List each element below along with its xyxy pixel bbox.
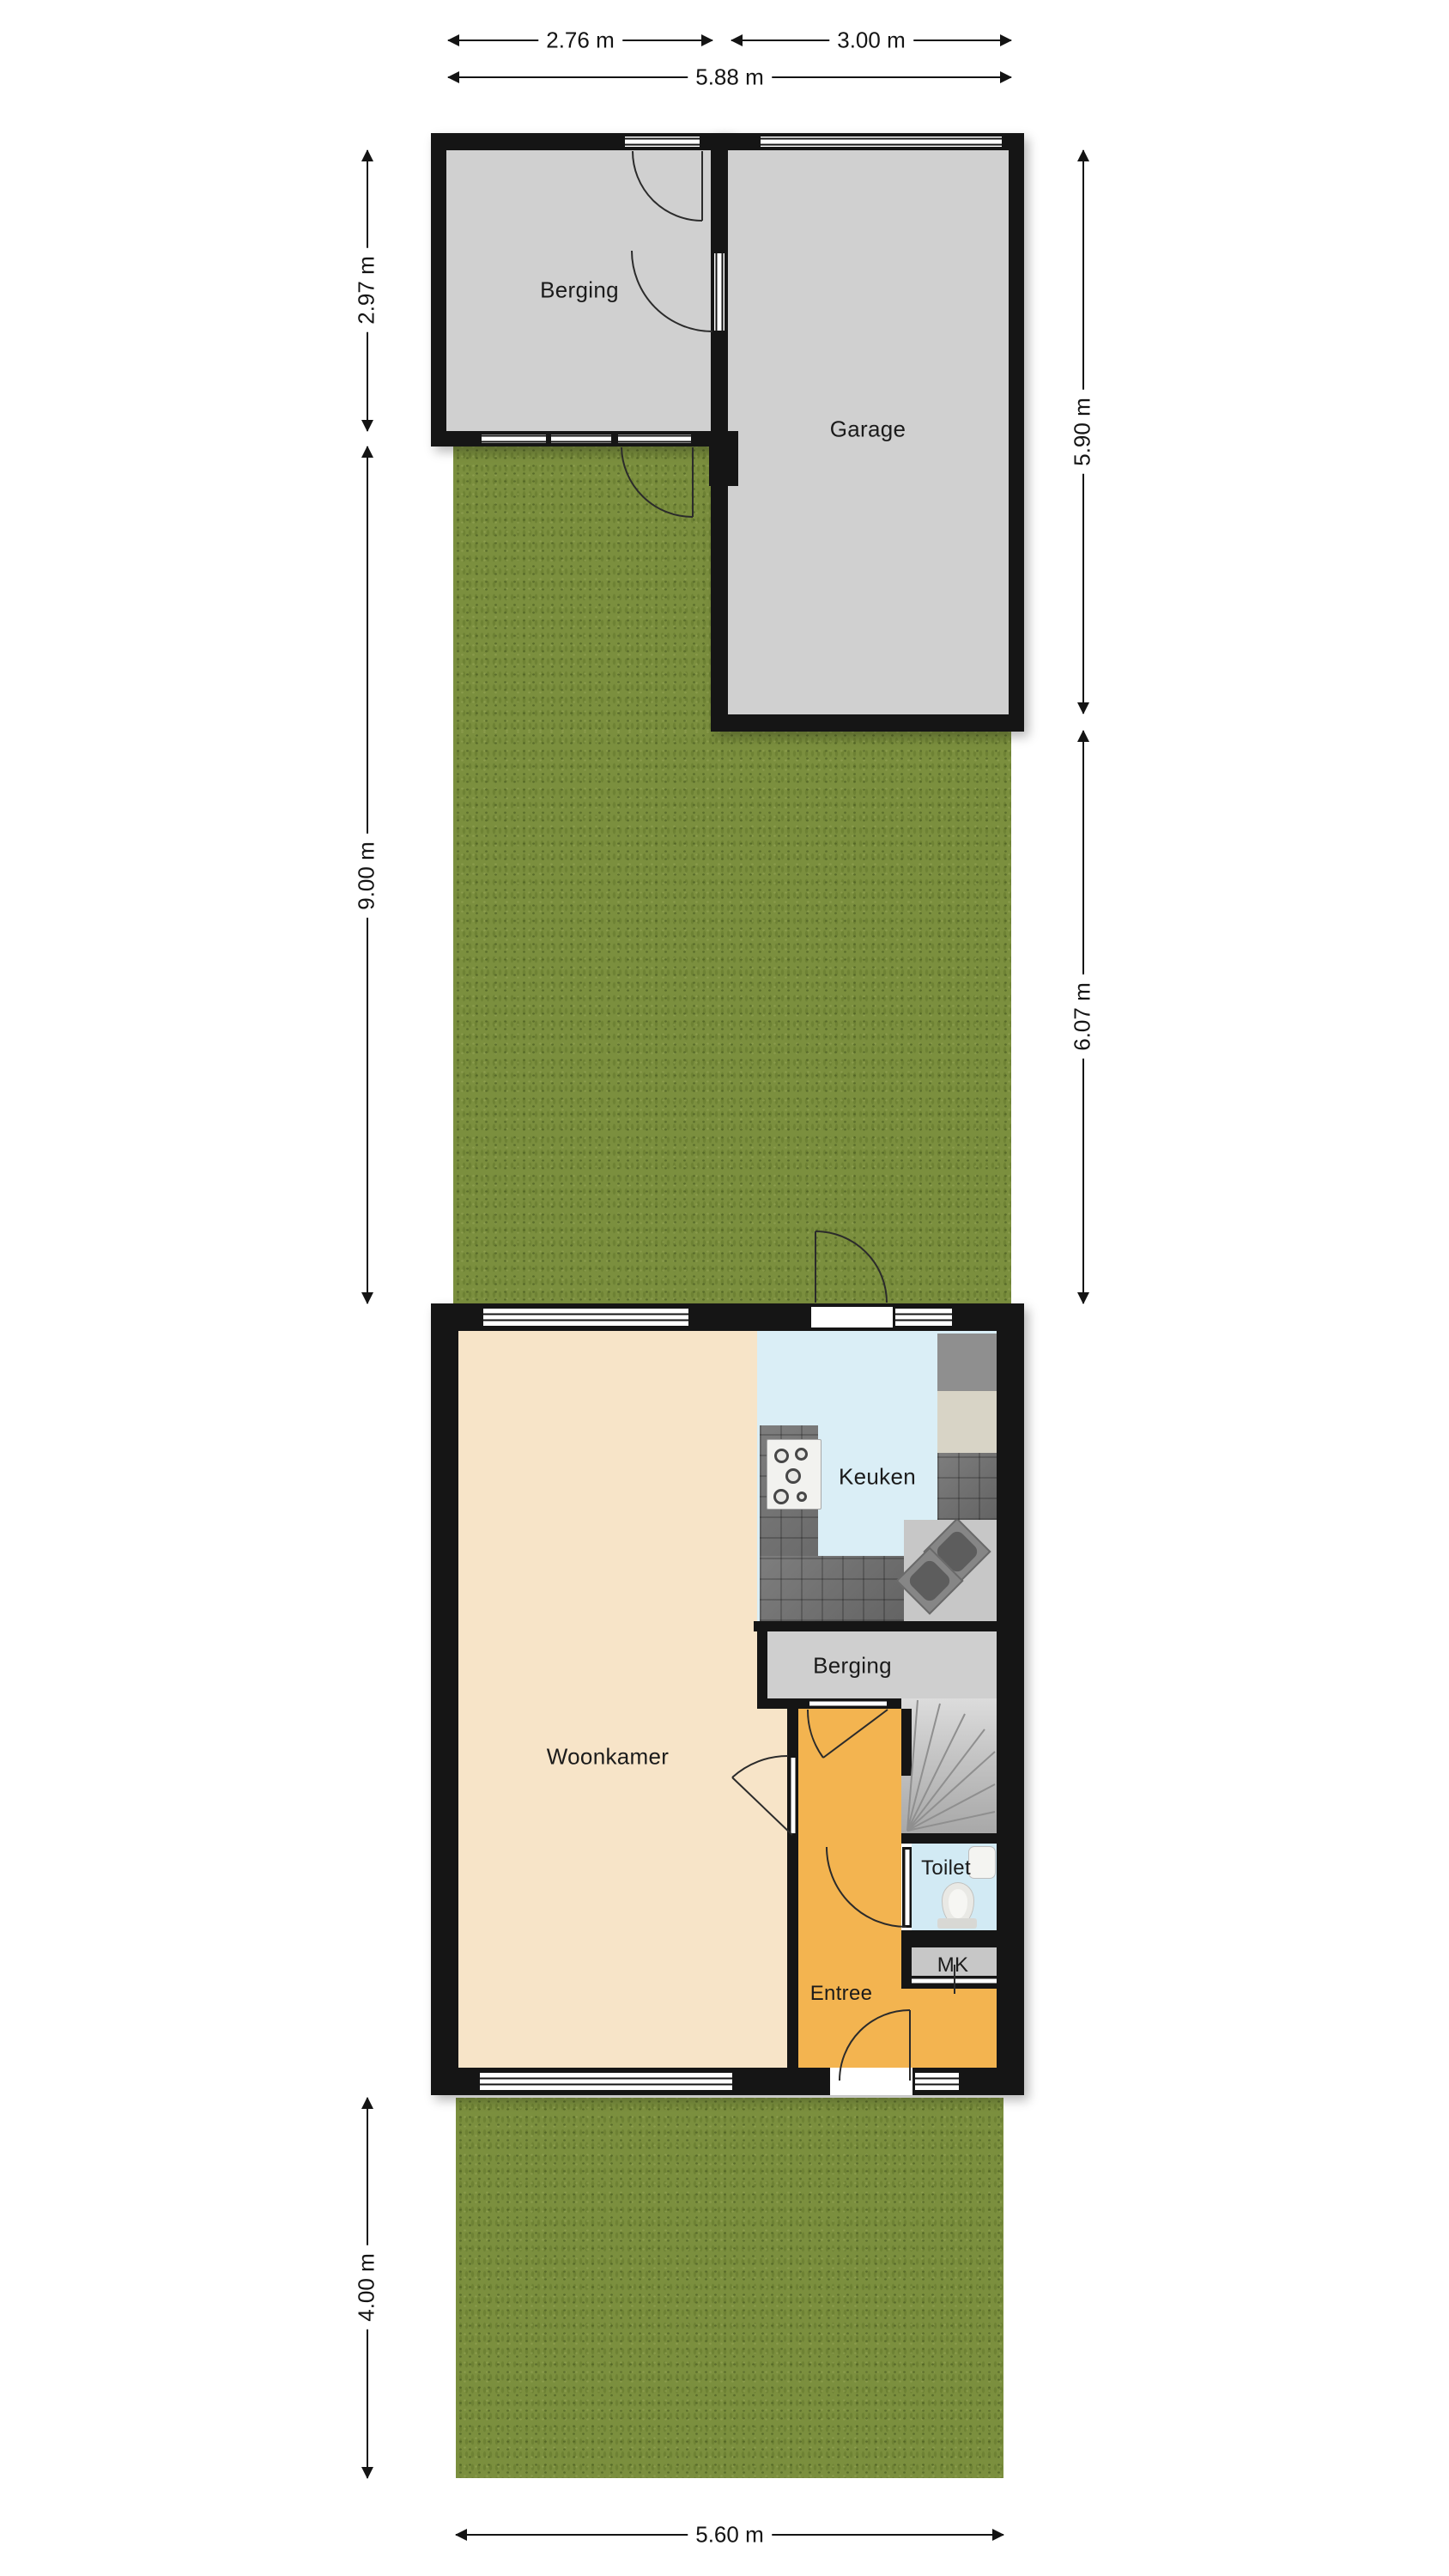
dim-label-left-bottom: 4.00 m bbox=[354, 2245, 380, 2330]
wall-garage-bottom bbox=[711, 714, 1024, 732]
kitchen-counter-bottom bbox=[760, 1556, 904, 1621]
room-label-garage: Garage bbox=[830, 416, 906, 443]
wall-toilet-bottom bbox=[901, 1930, 997, 1947]
sink-basin-2 bbox=[906, 1558, 953, 1604]
wall-mk-left bbox=[901, 1947, 912, 1989]
wall-berging-left bbox=[757, 1621, 767, 1709]
staircase bbox=[901, 1698, 997, 1833]
floor-plan-canvas: Berging Garage Keuken Woonkamer Berging … bbox=[0, 0, 1449, 2576]
dim-label-top-total: 5.88 m bbox=[688, 64, 772, 91]
window-woonkamer-front bbox=[477, 2071, 735, 2092]
kitchen-unit-tall bbox=[937, 1334, 997, 1391]
floor-woonkamer-strip bbox=[757, 1709, 787, 2068]
garden-bottom bbox=[456, 2098, 1003, 2478]
window-berging-garden bbox=[479, 433, 694, 445]
hob-burner-1 bbox=[774, 1449, 789, 1463]
wall-house-left bbox=[431, 1303, 458, 2095]
floor-entree bbox=[798, 1709, 901, 2068]
dim-label-left-top: 2.97 m bbox=[354, 248, 380, 332]
window-keuken-back bbox=[893, 1307, 955, 1327]
door-toilet-frame bbox=[902, 1847, 912, 1928]
door-back-opening bbox=[811, 1307, 893, 1327]
dim-label-bottom-total: 5.60 m bbox=[688, 2522, 772, 2549]
kitchen-unit-lower bbox=[937, 1453, 997, 1520]
door-berging-top-entry bbox=[622, 135, 702, 149]
toilet-base bbox=[937, 1918, 977, 1929]
door-woonkamer-frame bbox=[788, 1755, 797, 1836]
wall-corner-pillar bbox=[709, 431, 738, 486]
room-label-entree: Entree bbox=[810, 1982, 873, 2006]
toilet-bowl-inner bbox=[949, 1889, 967, 1918]
front-door-opening bbox=[830, 2068, 912, 2095]
room-label-woonkamer: Woonkamer bbox=[547, 1744, 669, 1771]
hob-burner-5 bbox=[797, 1492, 807, 1502]
hob-burner-2 bbox=[795, 1448, 808, 1461]
room-label-keuken: Keuken bbox=[839, 1464, 916, 1491]
wall-house-right bbox=[997, 1303, 1024, 2095]
wall-stairs-left bbox=[901, 1709, 912, 1776]
window-jamb-2 bbox=[611, 433, 618, 445]
room-label-toilet: Toilet bbox=[921, 1856, 971, 1880]
dim-label-right-top: 5.90 m bbox=[1070, 390, 1096, 474]
wall-toilet-top bbox=[901, 1833, 997, 1844]
room-label-berging-top: Berging bbox=[540, 277, 619, 304]
floor-woonkamer bbox=[458, 1331, 757, 2068]
window-woonkamer-back bbox=[481, 1307, 691, 1327]
window-berging-entree bbox=[807, 1699, 889, 1708]
door-berging-garage-frame bbox=[712, 251, 726, 333]
mk-threshold-line bbox=[912, 1986, 997, 1989]
garden-middle bbox=[453, 732, 1011, 1303]
window-front-sidelight bbox=[912, 2071, 961, 2092]
hob-burner-3 bbox=[785, 1468, 801, 1484]
dim-label-top-left: 2.76 m bbox=[538, 27, 622, 54]
garage-door bbox=[758, 135, 1004, 149]
room-label-mk: MK bbox=[937, 1953, 969, 1978]
window-jamb-1 bbox=[546, 433, 551, 445]
hand-basin bbox=[968, 1846, 996, 1879]
garden-upper bbox=[453, 447, 711, 732]
wall-keuken-berging bbox=[754, 1621, 997, 1631]
gas-hob bbox=[767, 1439, 822, 1510]
wall-garage-right bbox=[1009, 133, 1024, 732]
wall-outbuilding-left bbox=[431, 133, 446, 447]
dim-label-left-middle: 9.00 m bbox=[354, 834, 380, 918]
hob-burner-4 bbox=[773, 1489, 789, 1504]
floor-entree-lower bbox=[901, 1989, 997, 2068]
room-label-berging: Berging bbox=[813, 1653, 892, 1680]
kitchen-unit-worktop bbox=[937, 1391, 997, 1453]
dim-label-top-right: 3.00 m bbox=[829, 27, 913, 54]
dim-label-right-bottom: 6.07 m bbox=[1070, 975, 1096, 1059]
